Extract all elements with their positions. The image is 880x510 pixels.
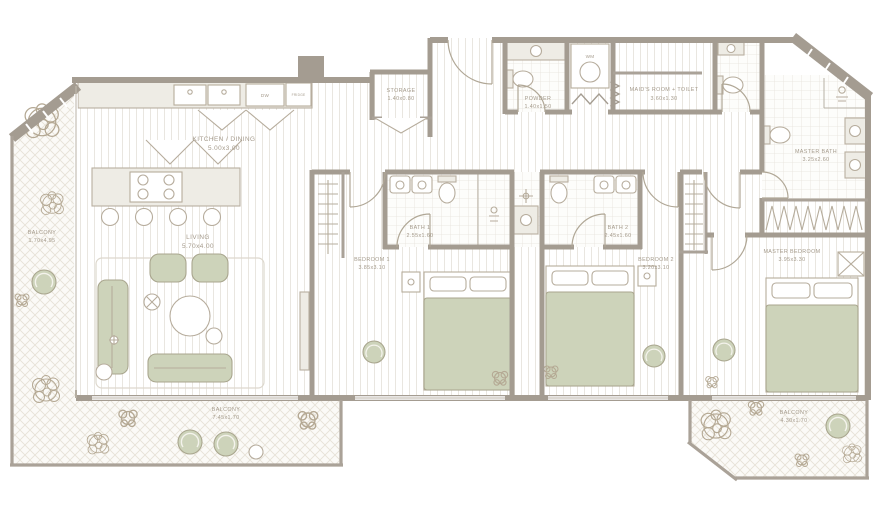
pillow: [772, 283, 810, 298]
toilet-tank: [550, 176, 568, 182]
master-bath-label: MASTER BATH: [795, 149, 837, 155]
armchair-2: [192, 254, 228, 282]
bar-stool: [136, 209, 153, 226]
living-dims: 5.70x4.00: [182, 243, 214, 250]
basin: [616, 176, 636, 193]
sink-right: [208, 85, 240, 105]
dw-label: DW: [261, 93, 270, 98]
armchair-1: [150, 254, 186, 282]
pouf: [96, 364, 112, 380]
wm-label: WM: [586, 54, 595, 59]
living-label: LIVING: [186, 234, 210, 241]
toilet-icon: [513, 71, 533, 87]
storage-label: STORAGE: [387, 88, 416, 94]
toilet-tank: [438, 176, 456, 182]
bath2-dims: 2.45x1.60: [604, 233, 631, 239]
bath1-dims: 2.55x1.60: [406, 233, 433, 239]
balcony-right-dims: 4.30x1.70: [780, 418, 807, 424]
maids-dims: 3.60x1.30: [650, 96, 677, 102]
outdoor-chair: [178, 430, 202, 454]
bath2-label: BATH 2: [608, 225, 629, 231]
outdoor-chair: [214, 432, 238, 456]
powder-label: POWDER: [525, 96, 552, 102]
pillow: [552, 271, 588, 285]
duvet: [546, 292, 634, 386]
toilet-icon: [439, 183, 455, 203]
outdoor-chair: [32, 270, 56, 294]
powder-dims: 1.40x1.50: [524, 104, 551, 110]
shaft-block: [298, 56, 324, 80]
bedroom2-label: BEDROOM 2: [638, 257, 674, 263]
bar-stool: [170, 209, 187, 226]
pillow: [430, 277, 466, 291]
fridge-label: FRIDGE: [292, 93, 306, 97]
basin: [531, 46, 542, 57]
pillow: [470, 277, 506, 291]
bedroom2-dims: 3.20x3.10: [642, 265, 669, 271]
floor-storage: [372, 72, 430, 118]
bar-stool: [204, 209, 221, 226]
master-bedroom-label: MASTER BEDROOM: [763, 249, 820, 255]
basin: [594, 176, 614, 193]
basin: [850, 126, 861, 137]
outdoor-table: [249, 445, 263, 459]
floor-hall: [505, 112, 762, 172]
side-table: [206, 328, 222, 344]
balcony-bottom-label: BALCONY: [212, 407, 240, 413]
tv-console: [300, 292, 309, 370]
storage-dims: 1.40x0.80: [387, 96, 414, 102]
basin: [521, 215, 532, 226]
floorplan-canvas: KITCHEN / DINING 5.00x3.00 LIVING 5.70x4…: [0, 0, 880, 510]
toilet-tank: [764, 126, 770, 144]
toilet-icon: [551, 183, 567, 203]
basin: [412, 176, 432, 193]
balcony-bottom-dims: 7.45x1.70: [212, 415, 239, 421]
cooktop: [130, 172, 182, 202]
balcony-right-label: BALCONY: [780, 410, 808, 416]
toilet-tank: [507, 70, 513, 88]
basin: [390, 176, 410, 193]
outdoor-chair: [826, 414, 850, 438]
bedroom1-label: BEDROOM 1: [354, 257, 390, 263]
master-bath-dims: 3.25x2.60: [802, 157, 829, 163]
bar-stool: [102, 209, 119, 226]
pillow: [592, 271, 628, 285]
floor-balcony-bottom: [76, 400, 342, 466]
washing-machine: [571, 44, 609, 88]
kitchen-label: KITCHEN / DINING: [193, 136, 256, 143]
coffee-table: [170, 296, 210, 336]
kitchen-dims: 5.00x3.00: [208, 145, 240, 152]
master-bedroom-dims: 3.95x3.30: [778, 257, 805, 263]
bedroom1-dims: 3.85x3.10: [358, 265, 385, 271]
toilet-icon: [770, 127, 790, 143]
balcony-left-label: BALCONY: [28, 230, 56, 236]
sofa-left: [98, 280, 128, 374]
maids-label: MAID'S ROOM + TOILET: [630, 87, 699, 93]
nightstand: [402, 272, 420, 292]
sink-left: [174, 85, 206, 105]
bath1-label: BATH 1: [410, 225, 431, 231]
pillow: [814, 283, 852, 298]
balcony-left-dims: 1.70x4.95: [28, 238, 55, 244]
duvet: [766, 305, 858, 392]
floor-plan: KITCHEN / DINING 5.00x3.00 LIVING 5.70x4…: [0, 0, 880, 510]
floor-foyer: [430, 38, 505, 172]
basin: [850, 160, 861, 171]
